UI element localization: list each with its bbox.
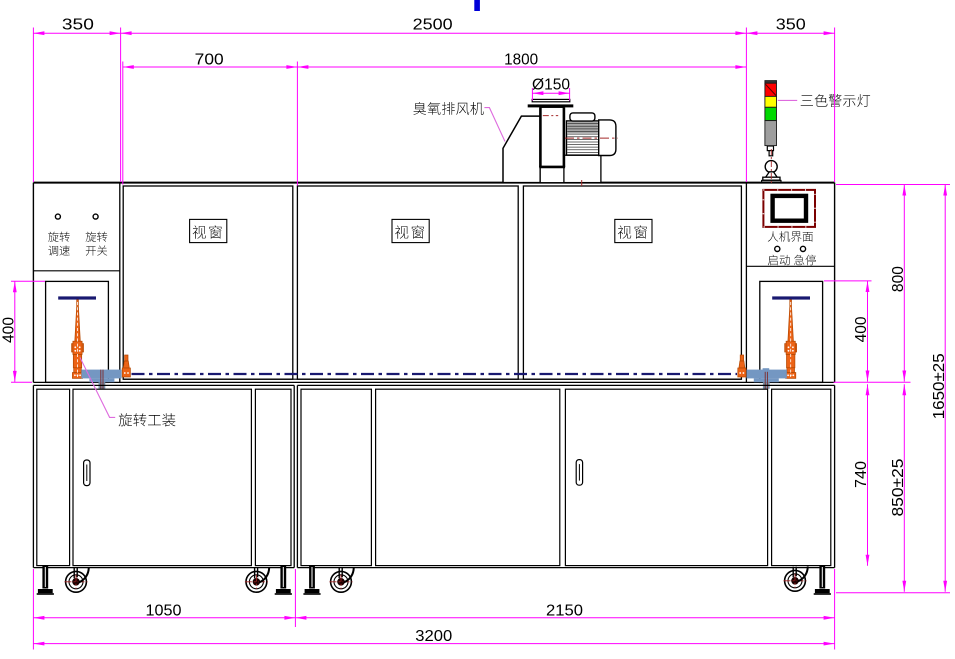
svg-text:350: 350 — [62, 17, 94, 34]
svg-text:700: 700 — [195, 52, 224, 69]
svg-text:740: 740 — [853, 461, 870, 488]
svg-text:2150: 2150 — [546, 602, 583, 619]
svg-text:1800: 1800 — [504, 52, 538, 69]
svg-text:3200: 3200 — [415, 628, 452, 645]
svg-text:400: 400 — [0, 317, 17, 343]
svg-text:350: 350 — [776, 17, 806, 34]
svg-text:1650±25: 1650±25 — [931, 353, 948, 419]
svg-text:Ø150: Ø150 — [532, 77, 570, 94]
svg-text:1050: 1050 — [146, 602, 182, 619]
svg-text:400: 400 — [853, 316, 870, 342]
svg-text:800: 800 — [890, 266, 907, 292]
svg-text:850±25: 850±25 — [890, 458, 907, 516]
svg-text:2500: 2500 — [413, 17, 453, 34]
